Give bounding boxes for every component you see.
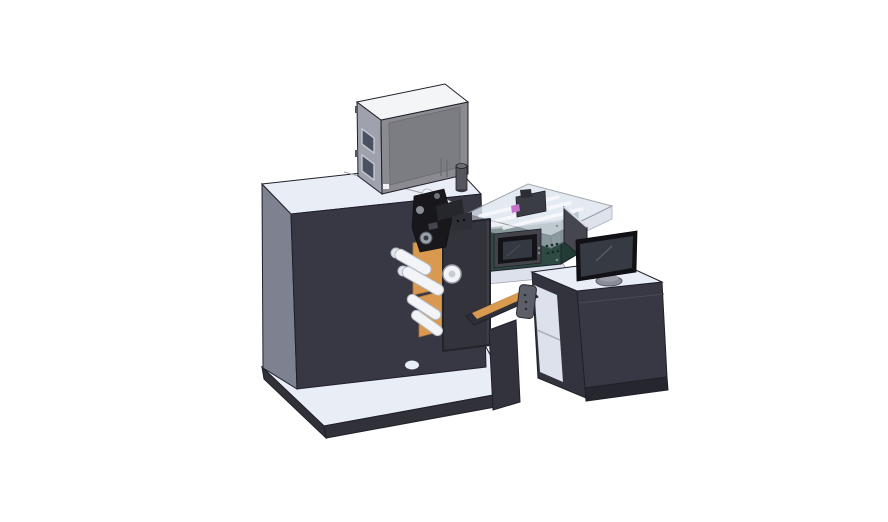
vent-hole: [546, 245, 549, 248]
cabinet-front-port-hole: [405, 361, 419, 370]
box-label-sticker: [383, 184, 389, 189]
exhaust-cylinder: [456, 166, 467, 190]
vent-hole: [556, 243, 559, 246]
vent-hole: [551, 244, 554, 247]
guide-wheel: [434, 193, 440, 199]
bracket-hole: [525, 308, 528, 311]
screw: [556, 259, 558, 261]
vent-hole: [557, 250, 560, 253]
hmi-button: [538, 252, 540, 254]
vent-hole: [547, 252, 550, 255]
screw: [556, 225, 558, 227]
top-control-box: [355, 84, 468, 194]
hmi-touchscreen: [503, 239, 532, 260]
spindle-hub-center: [449, 271, 456, 278]
vent-hole: [552, 251, 555, 254]
drive-wheel-center: [424, 236, 429, 241]
hinge: [355, 106, 358, 113]
carriage-top-block: [520, 189, 532, 198]
desk-front-panel: [577, 282, 667, 388]
cad-render-canvas: [0, 0, 888, 522]
machine-3d-render: [0, 0, 888, 522]
station-mounting-plate: [443, 219, 490, 351]
exhaust-cylinder-cap: [456, 164, 467, 169]
bracket-hole: [524, 294, 527, 297]
support-column: [489, 320, 520, 410]
guide-wheel: [416, 206, 424, 214]
printhead-mechanism: [412, 189, 452, 252]
bracket-dot: [463, 219, 465, 221]
bracket-dot: [457, 220, 459, 222]
bracket-hole: [525, 301, 528, 304]
hinge: [355, 150, 358, 157]
hmi-button: [538, 247, 540, 249]
